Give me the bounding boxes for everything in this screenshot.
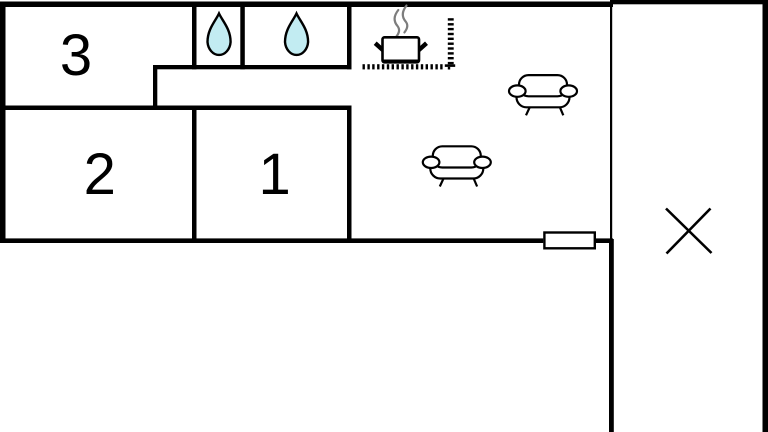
svg-text:3: 3 xyxy=(60,23,92,88)
svg-text:1: 1 xyxy=(258,142,290,207)
svg-text:2: 2 xyxy=(84,142,116,207)
